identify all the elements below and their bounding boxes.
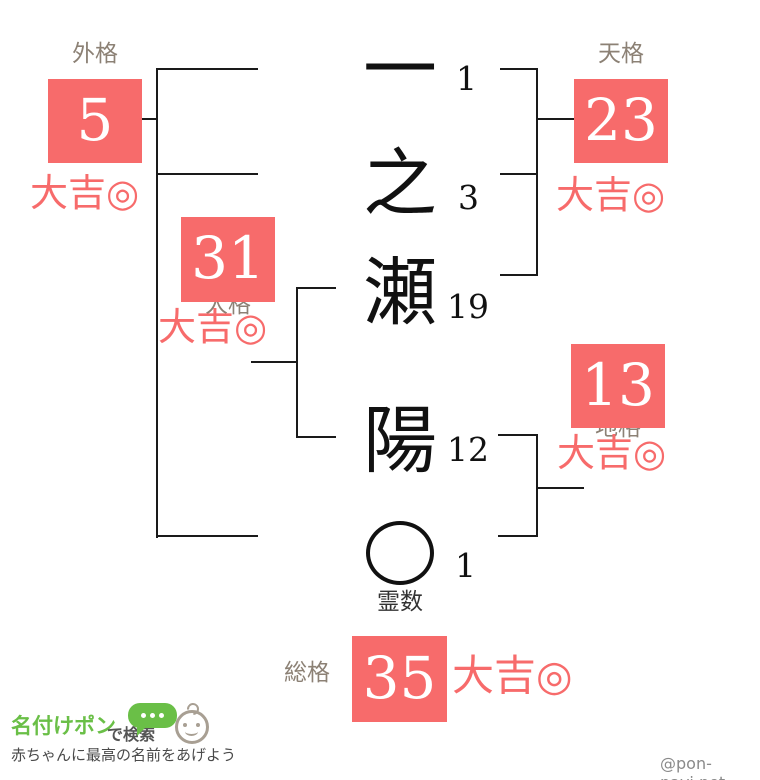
jinkaku-bracket-connector: [251, 361, 296, 363]
bubble-dot: [159, 713, 164, 718]
reisu-label: 霊数: [377, 590, 423, 615]
gaikaku-bracket-stub-top: [156, 68, 258, 70]
tenkaku-bracket-stub-bottom: [500, 274, 538, 276]
baby-eye-icon: [196, 723, 200, 727]
bubble-dots: [128, 703, 177, 728]
tenkaku-score-box: 23: [574, 79, 668, 163]
chikaku-bracket-stub-bottom: [498, 535, 538, 537]
jinkaku-bracket-stub-bottom: [296, 436, 336, 438]
gaikaku-bracket-stub-mid: [156, 173, 258, 175]
name-char-4: 陽: [355, 403, 445, 479]
stroke-count-1: 1: [456, 62, 477, 95]
jinkaku-bracket-vline: [296, 288, 298, 438]
tagline: 赤ちゃんに最高の名前をあげよう: [11, 746, 236, 766]
soukaku-label: 総格: [284, 661, 330, 686]
soukaku-score-box: 35: [352, 636, 447, 722]
reisu-circle-icon: [366, 521, 434, 585]
baby-face-icon: [175, 710, 209, 744]
gaikaku-label: 外格: [48, 42, 142, 67]
tenkaku-bracket-stub-mid: [500, 173, 538, 175]
chikaku-bracket-connector: [538, 487, 584, 489]
gaikaku-bracket-stub-bottom: [156, 535, 258, 537]
stroke-count-2: 3: [458, 181, 479, 214]
baby-eye-icon: [183, 723, 187, 727]
name-char-2: 之: [355, 146, 445, 222]
jinkaku-bracket-stub-top: [296, 287, 336, 289]
logo-text: 名付けポン: [11, 712, 116, 741]
chikaku-score-box: 13: [571, 344, 665, 428]
name-char-3: 瀬: [355, 255, 445, 331]
reisu-stroke-count: 1: [455, 549, 476, 582]
jinkaku-fortune: 大吉◎: [158, 308, 267, 348]
bubble-dot: [150, 713, 155, 718]
soukaku-fortune: 大吉◎: [452, 654, 573, 698]
name-char-1: 一: [355, 32, 445, 108]
tenkaku-bracket-connector: [538, 118, 574, 120]
tenkaku-bracket-stub-top: [500, 68, 538, 70]
chikaku-bracket-vline: [536, 434, 538, 537]
stroke-count-3: 19: [447, 290, 489, 323]
chikaku-bracket-stub-top: [498, 434, 538, 436]
gaikaku-score-box: 5: [48, 79, 142, 163]
seimei-handan-diagram: 一 之 瀬 陽 1 3 19 12 1 霊数 外格 5 大吉◎ 天格 23 大吉…: [0, 0, 760, 780]
tenkaku-fortune: 大吉◎: [556, 176, 665, 216]
speech-bubble-icon: [128, 703, 177, 728]
gaikaku-fortune: 大吉◎: [30, 174, 139, 214]
tenkaku-label: 天格: [574, 42, 668, 67]
baby-mouth-icon: [185, 727, 198, 736]
gaikaku-bracket-connector: [142, 118, 156, 120]
jinkaku-score-box: 31: [181, 217, 275, 302]
stroke-count-4: 12: [447, 433, 489, 466]
chikaku-fortune: 大吉◎: [557, 434, 666, 474]
bubble-dot: [141, 713, 146, 718]
credit: @pon-navi.net: [660, 754, 760, 780]
gaikaku-bracket-vline: [156, 69, 158, 538]
